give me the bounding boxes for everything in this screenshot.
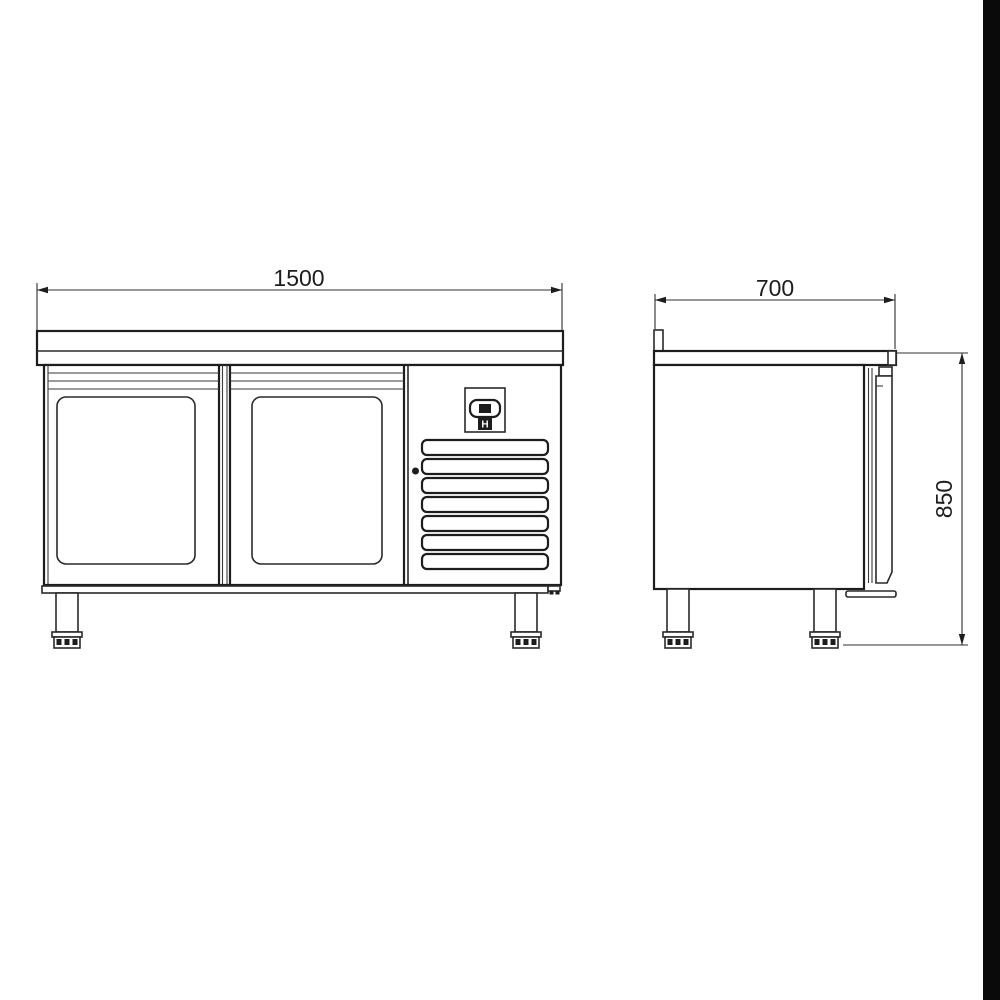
arrowhead-left-icon xyxy=(37,287,48,293)
side-door-face xyxy=(876,376,892,583)
louvre-slat xyxy=(422,459,548,474)
side-backsplash xyxy=(654,330,663,353)
lock-keyhole-icon xyxy=(412,468,419,475)
technical-drawing-page: 1500 xyxy=(0,0,1000,1000)
front-plinth xyxy=(42,586,560,595)
side-height-label: 850 xyxy=(931,480,957,518)
louvre-slat xyxy=(422,440,548,455)
side-depth-dimension: 700 xyxy=(655,275,895,349)
louvre-slat xyxy=(422,554,548,569)
louvre-slat xyxy=(422,497,548,512)
side-door-handle xyxy=(879,367,892,376)
refrigerated-counter-drawing: 1500 xyxy=(0,0,1000,1000)
front-width-label: 1500 xyxy=(273,265,324,291)
louvre-slat xyxy=(422,478,548,493)
louvre-slat xyxy=(422,516,548,531)
side-left-leg xyxy=(663,589,693,648)
front-corner-bracket xyxy=(548,586,560,591)
arrowhead-down-icon xyxy=(959,634,965,645)
front-right-door xyxy=(230,365,404,584)
front-right-leg xyxy=(511,593,541,648)
arrowhead-right-icon xyxy=(884,297,895,303)
arrowhead-right-icon xyxy=(551,287,562,293)
arrowhead-left-icon xyxy=(655,297,666,303)
front-width-dimension: 1500 xyxy=(37,265,562,331)
arrowhead-up-icon xyxy=(959,353,965,364)
controller-h-label: H xyxy=(481,420,488,431)
side-counter-nose xyxy=(888,351,896,365)
thermostat-controller: H xyxy=(465,388,505,432)
front-left-door-panel xyxy=(57,397,195,564)
front-countertop xyxy=(37,331,563,365)
side-depth-label: 700 xyxy=(756,275,794,301)
controller-switch-icon xyxy=(479,404,491,413)
side-body xyxy=(654,365,864,589)
side-countertop xyxy=(654,351,896,365)
front-view: 1500 xyxy=(37,265,563,648)
side-view: 700 xyxy=(654,275,968,648)
side-right-leg xyxy=(810,589,840,648)
louvre-slat xyxy=(422,535,548,550)
ventilation-louvres xyxy=(422,440,548,569)
scan-edge-strip xyxy=(983,0,1000,1000)
front-left-leg xyxy=(52,593,82,648)
side-door-bottom-bar xyxy=(846,591,896,597)
front-right-door-panel xyxy=(252,397,382,564)
